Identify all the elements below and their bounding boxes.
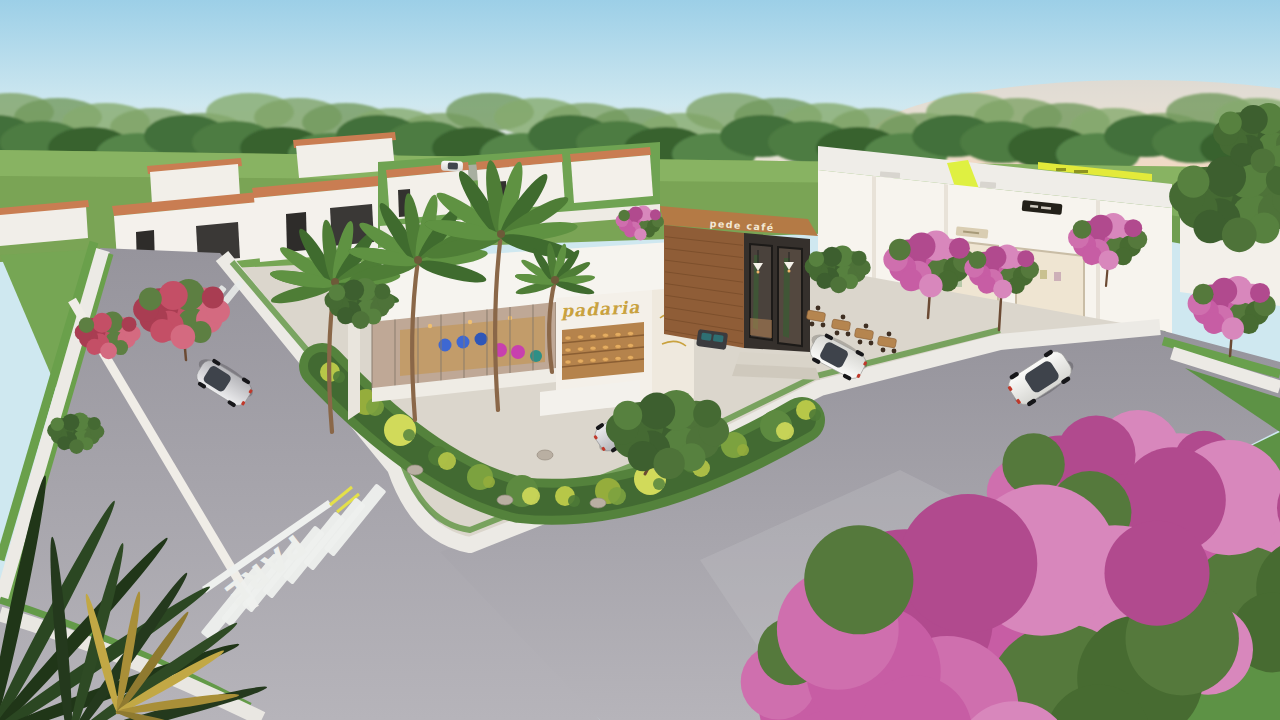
warm-glow	[750, 318, 772, 338]
yellow-strip-text-mark	[1056, 168, 1066, 171]
yellow-strip-text-mark	[1074, 170, 1088, 173]
bakery-sign: padaria	[560, 297, 641, 321]
glass-door	[778, 247, 802, 346]
poster	[1054, 272, 1061, 281]
scene-canvas: PARE padaria pede café	[0, 0, 1280, 720]
roof-duct	[980, 181, 996, 188]
architectural-render: PARE padaria pede café	[0, 0, 1280, 720]
poster	[1040, 270, 1047, 279]
h3-facade	[571, 155, 653, 203]
car-distant	[441, 161, 463, 172]
